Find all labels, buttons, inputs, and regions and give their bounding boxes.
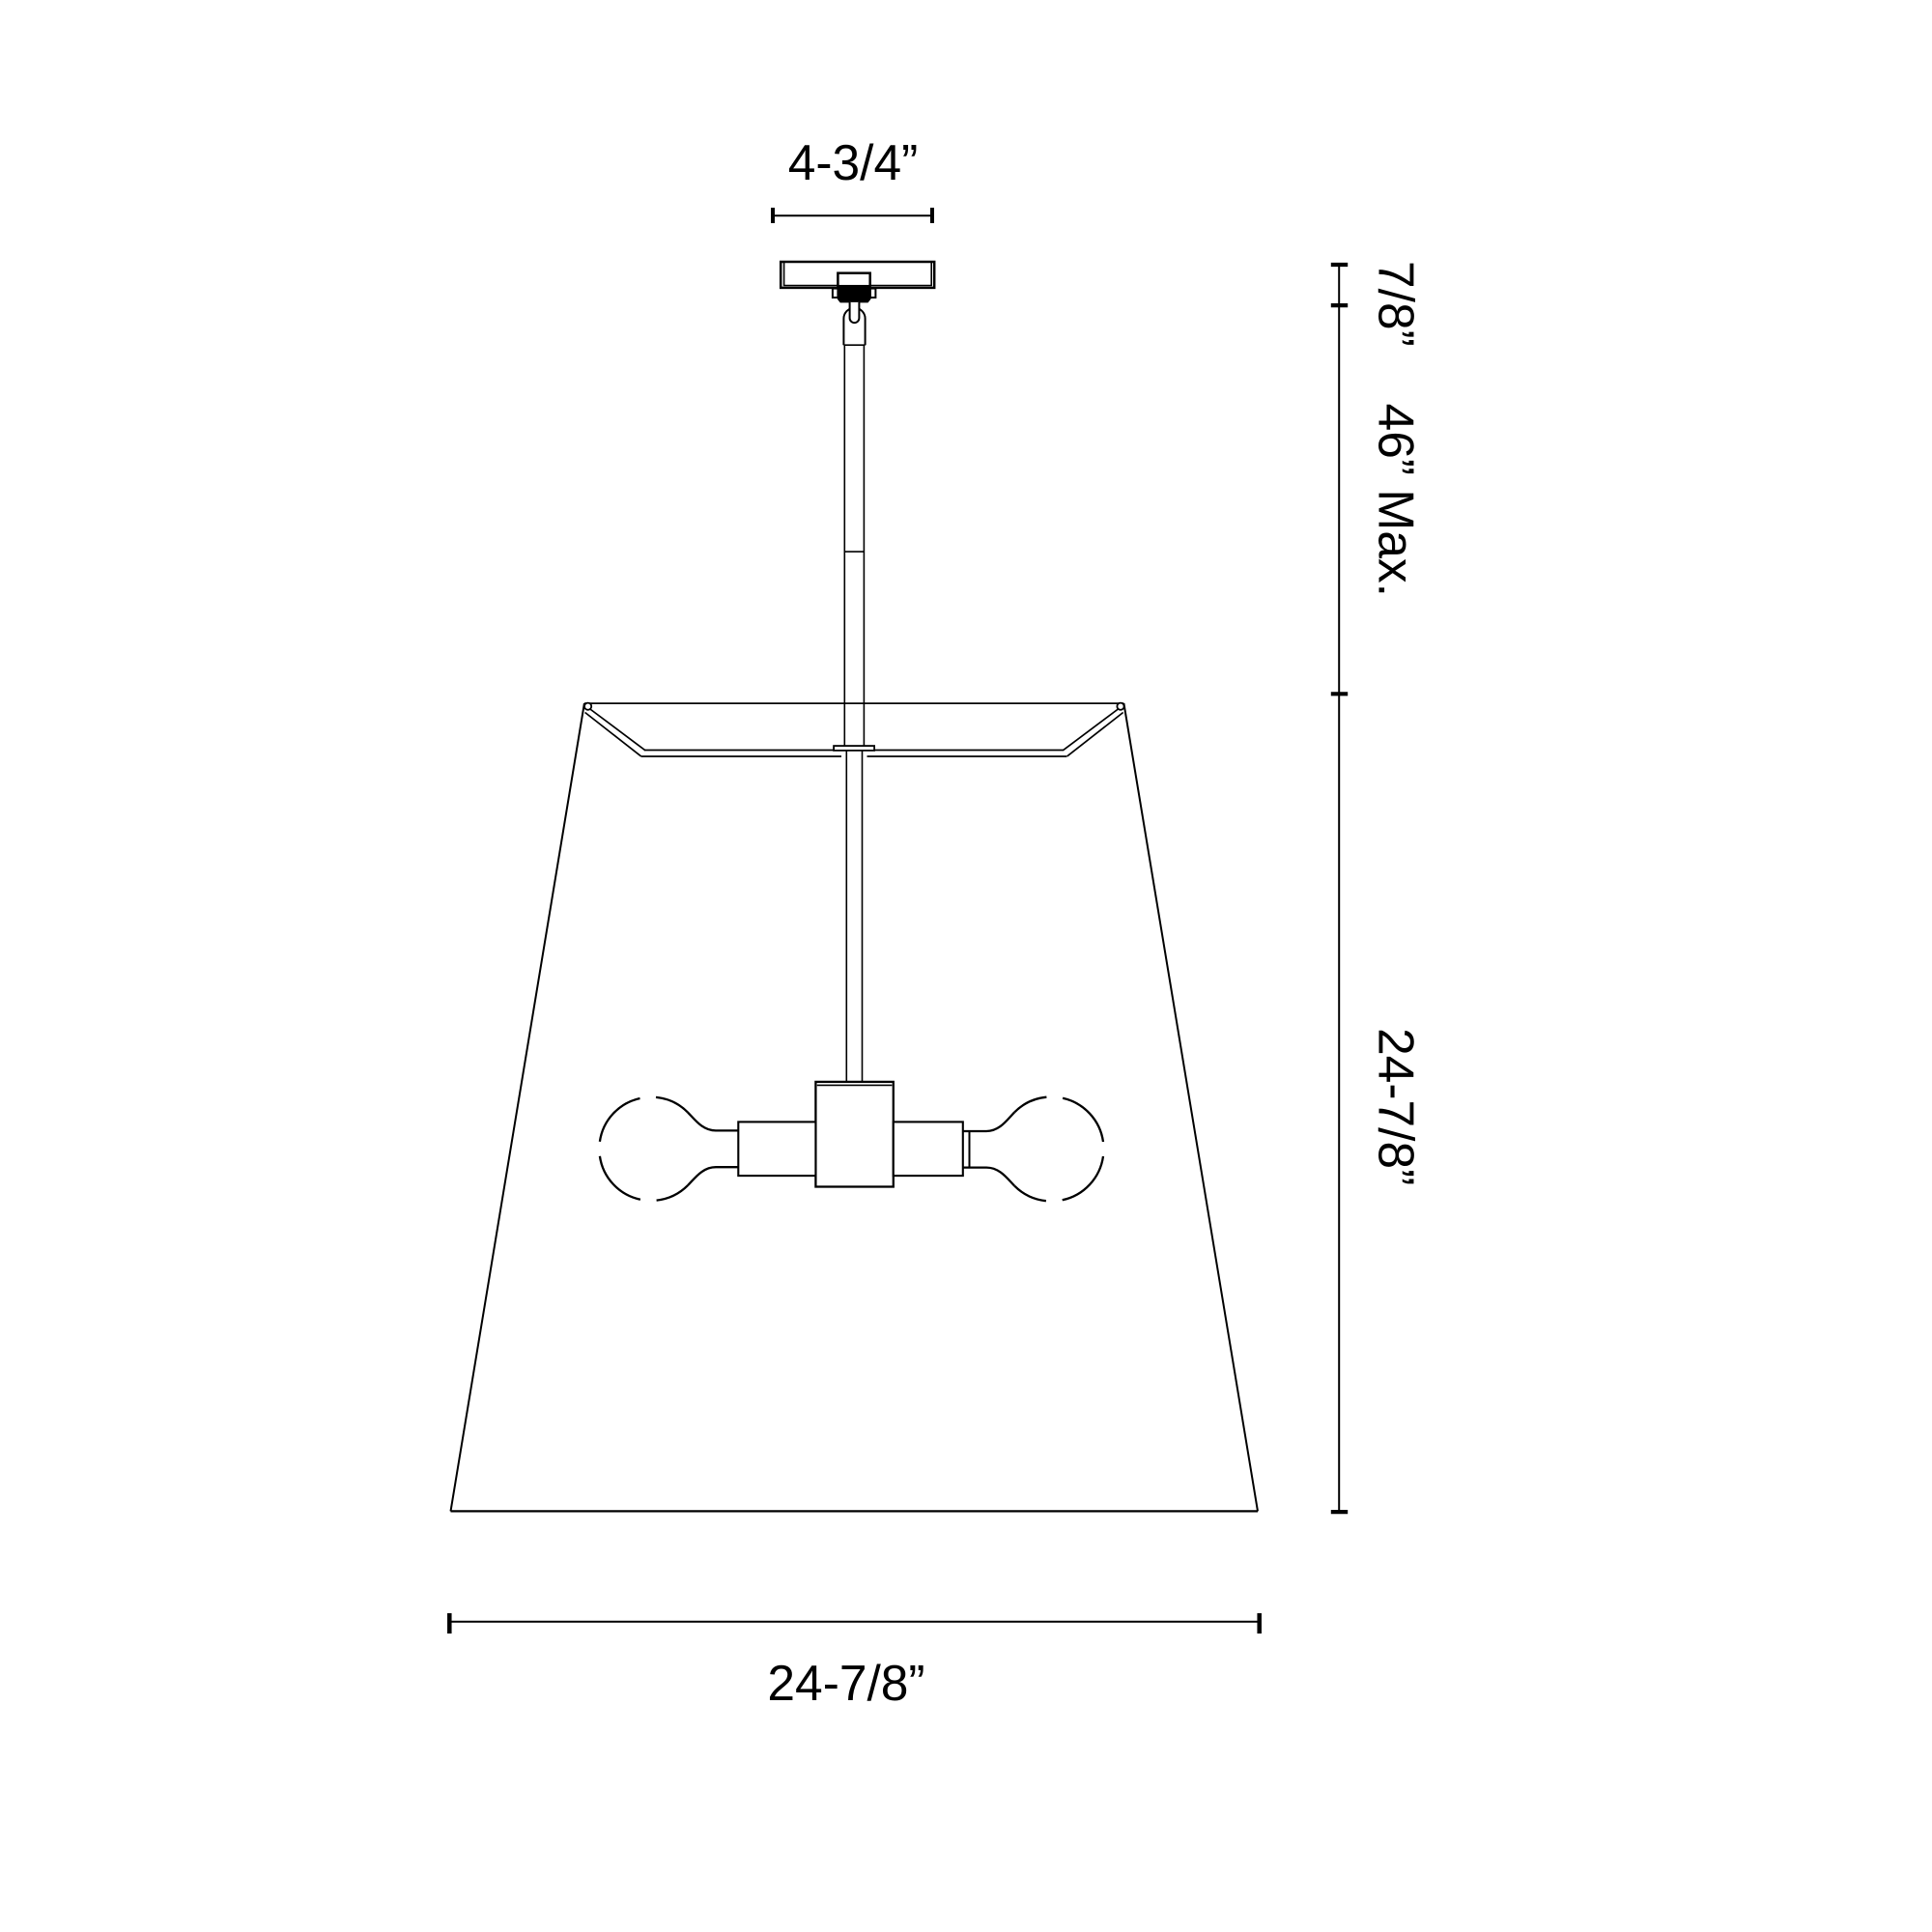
svg-text:7/8”: 7/8” [1369, 261, 1425, 347]
svg-text:24-7/8”: 24-7/8” [1369, 1028, 1425, 1185]
svg-text:24-7/8”: 24-7/8” [767, 1655, 924, 1711]
svg-text:46” Max.: 46” Max. [1369, 404, 1425, 597]
svg-text:4-3/4”: 4-3/4” [788, 134, 919, 190]
